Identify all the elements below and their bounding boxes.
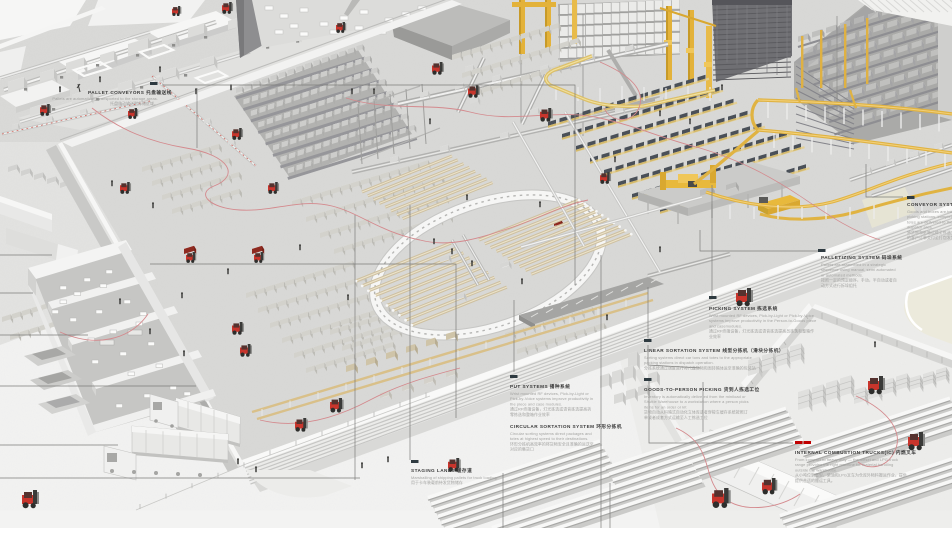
svg-text:CIRCULAR SORTATION SYSTEM 环形分拣: CIRCULAR SORTATION SYSTEM 环形分拣机: [510, 423, 622, 430]
svg-text:PICKING SYSTEM 拣选系统: PICKING SYSTEM 拣选系统: [709, 305, 778, 312]
svg-text:分拣系统通过调度运行将代盘货物和周转箱体运至准确的包装站: 分拣系统通过调度运行将代盘货物和周转箱体运至准确的包装站: [644, 365, 756, 370]
svg-text:托盘自动输送到存储区域。: 托盘自动输送到存储区域。: [110, 101, 158, 106]
svg-text:GOODS-TO-PERSON PICKING 货到人拣选工: GOODS-TO-PERSON PICKING 货到人拣选工位: [644, 386, 760, 393]
svg-text:业效率: 业效率: [709, 334, 721, 339]
svg-text:LINEAR SORTATION SYSTEM 线型分拣机（: LINEAR SORTATION SYSTEM 线型分拣机（滑块分拣机）: [644, 347, 784, 354]
svg-text:CONVEYOR SYSTEM: CONVEYOR SYSTEM: [907, 202, 952, 207]
svg-text:动方式进行拆垛组托: 动方式进行拆垛组托: [821, 283, 857, 288]
svg-text:PALLET CONVEYORS 托盘输送线: PALLET CONVEYORS 托盘输送线: [88, 89, 172, 96]
svg-text:单或者成套方式运输至人工拣选工位: 单或者成套方式运输至人工拣选工位: [644, 415, 708, 420]
svg-text:提供合适的搬运工具。: 提供合适的搬运工具。: [795, 478, 835, 483]
svg-text:PALLETIZING SYSTEM 码垛系统: PALLETIZING SYSTEM 码垛系统: [821, 254, 902, 261]
svg-text:对应的集货口: 对应的集货口: [510, 447, 534, 452]
svg-text:PUT SYSTEMS 播种系统: PUT SYSTEMS 播种系统: [510, 383, 570, 390]
svg-text:零拣选和整箱作业效率: 零拣选和整箱作业效率: [510, 412, 550, 417]
svg-text:的客户订单交付至打包发货区域: 的客户订单交付至打包发货区域: [907, 235, 952, 240]
svg-text:用于卡车装载前待发货物储存: 用于卡车装载前待发货物储存: [411, 480, 463, 485]
svg-text:INTERNAL COMBUSTION TRUCKS(IC): INTERNAL COMBUSTION TRUCKS(IC) 内燃叉车: [795, 449, 916, 456]
svg-text:STAGING LANES 缓存道: STAGING LANES 缓存道: [411, 467, 472, 474]
svg-text:通过RF终端设备，灯光拣选或语音拣选提高员拣选和整箱作: 通过RF终端设备，灯光拣选或语音拣选提高员拣选和整箱作: [709, 329, 814, 334]
